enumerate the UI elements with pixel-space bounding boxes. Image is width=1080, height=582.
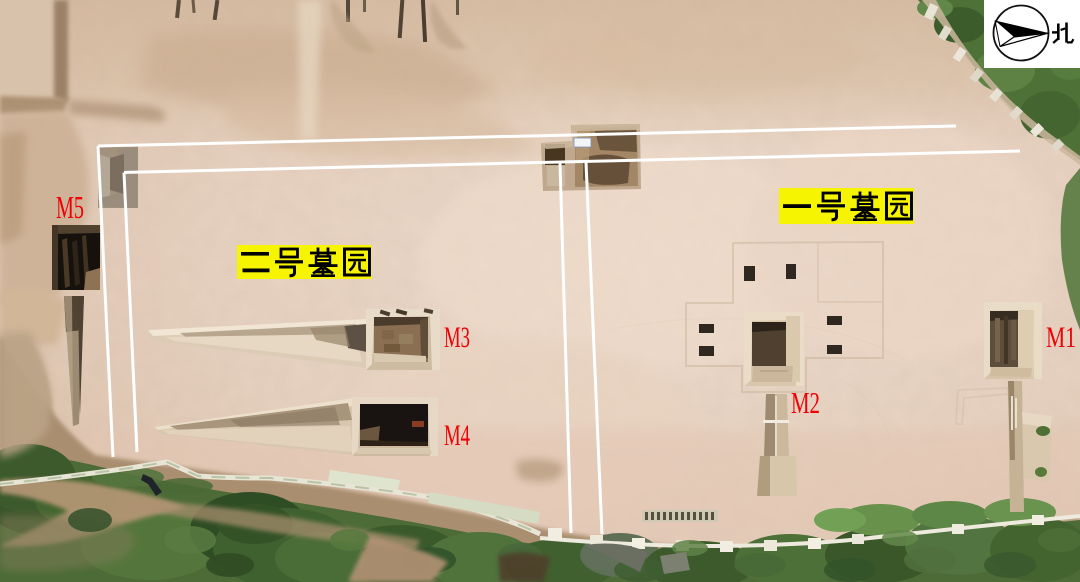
svg-text:M1: M1 — [1046, 321, 1076, 354]
svg-text:M3: M3 — [444, 321, 470, 354]
svg-text:M5: M5 — [56, 189, 84, 225]
svg-text:M2: M2 — [791, 385, 820, 420]
svg-text:M4: M4 — [444, 419, 470, 452]
